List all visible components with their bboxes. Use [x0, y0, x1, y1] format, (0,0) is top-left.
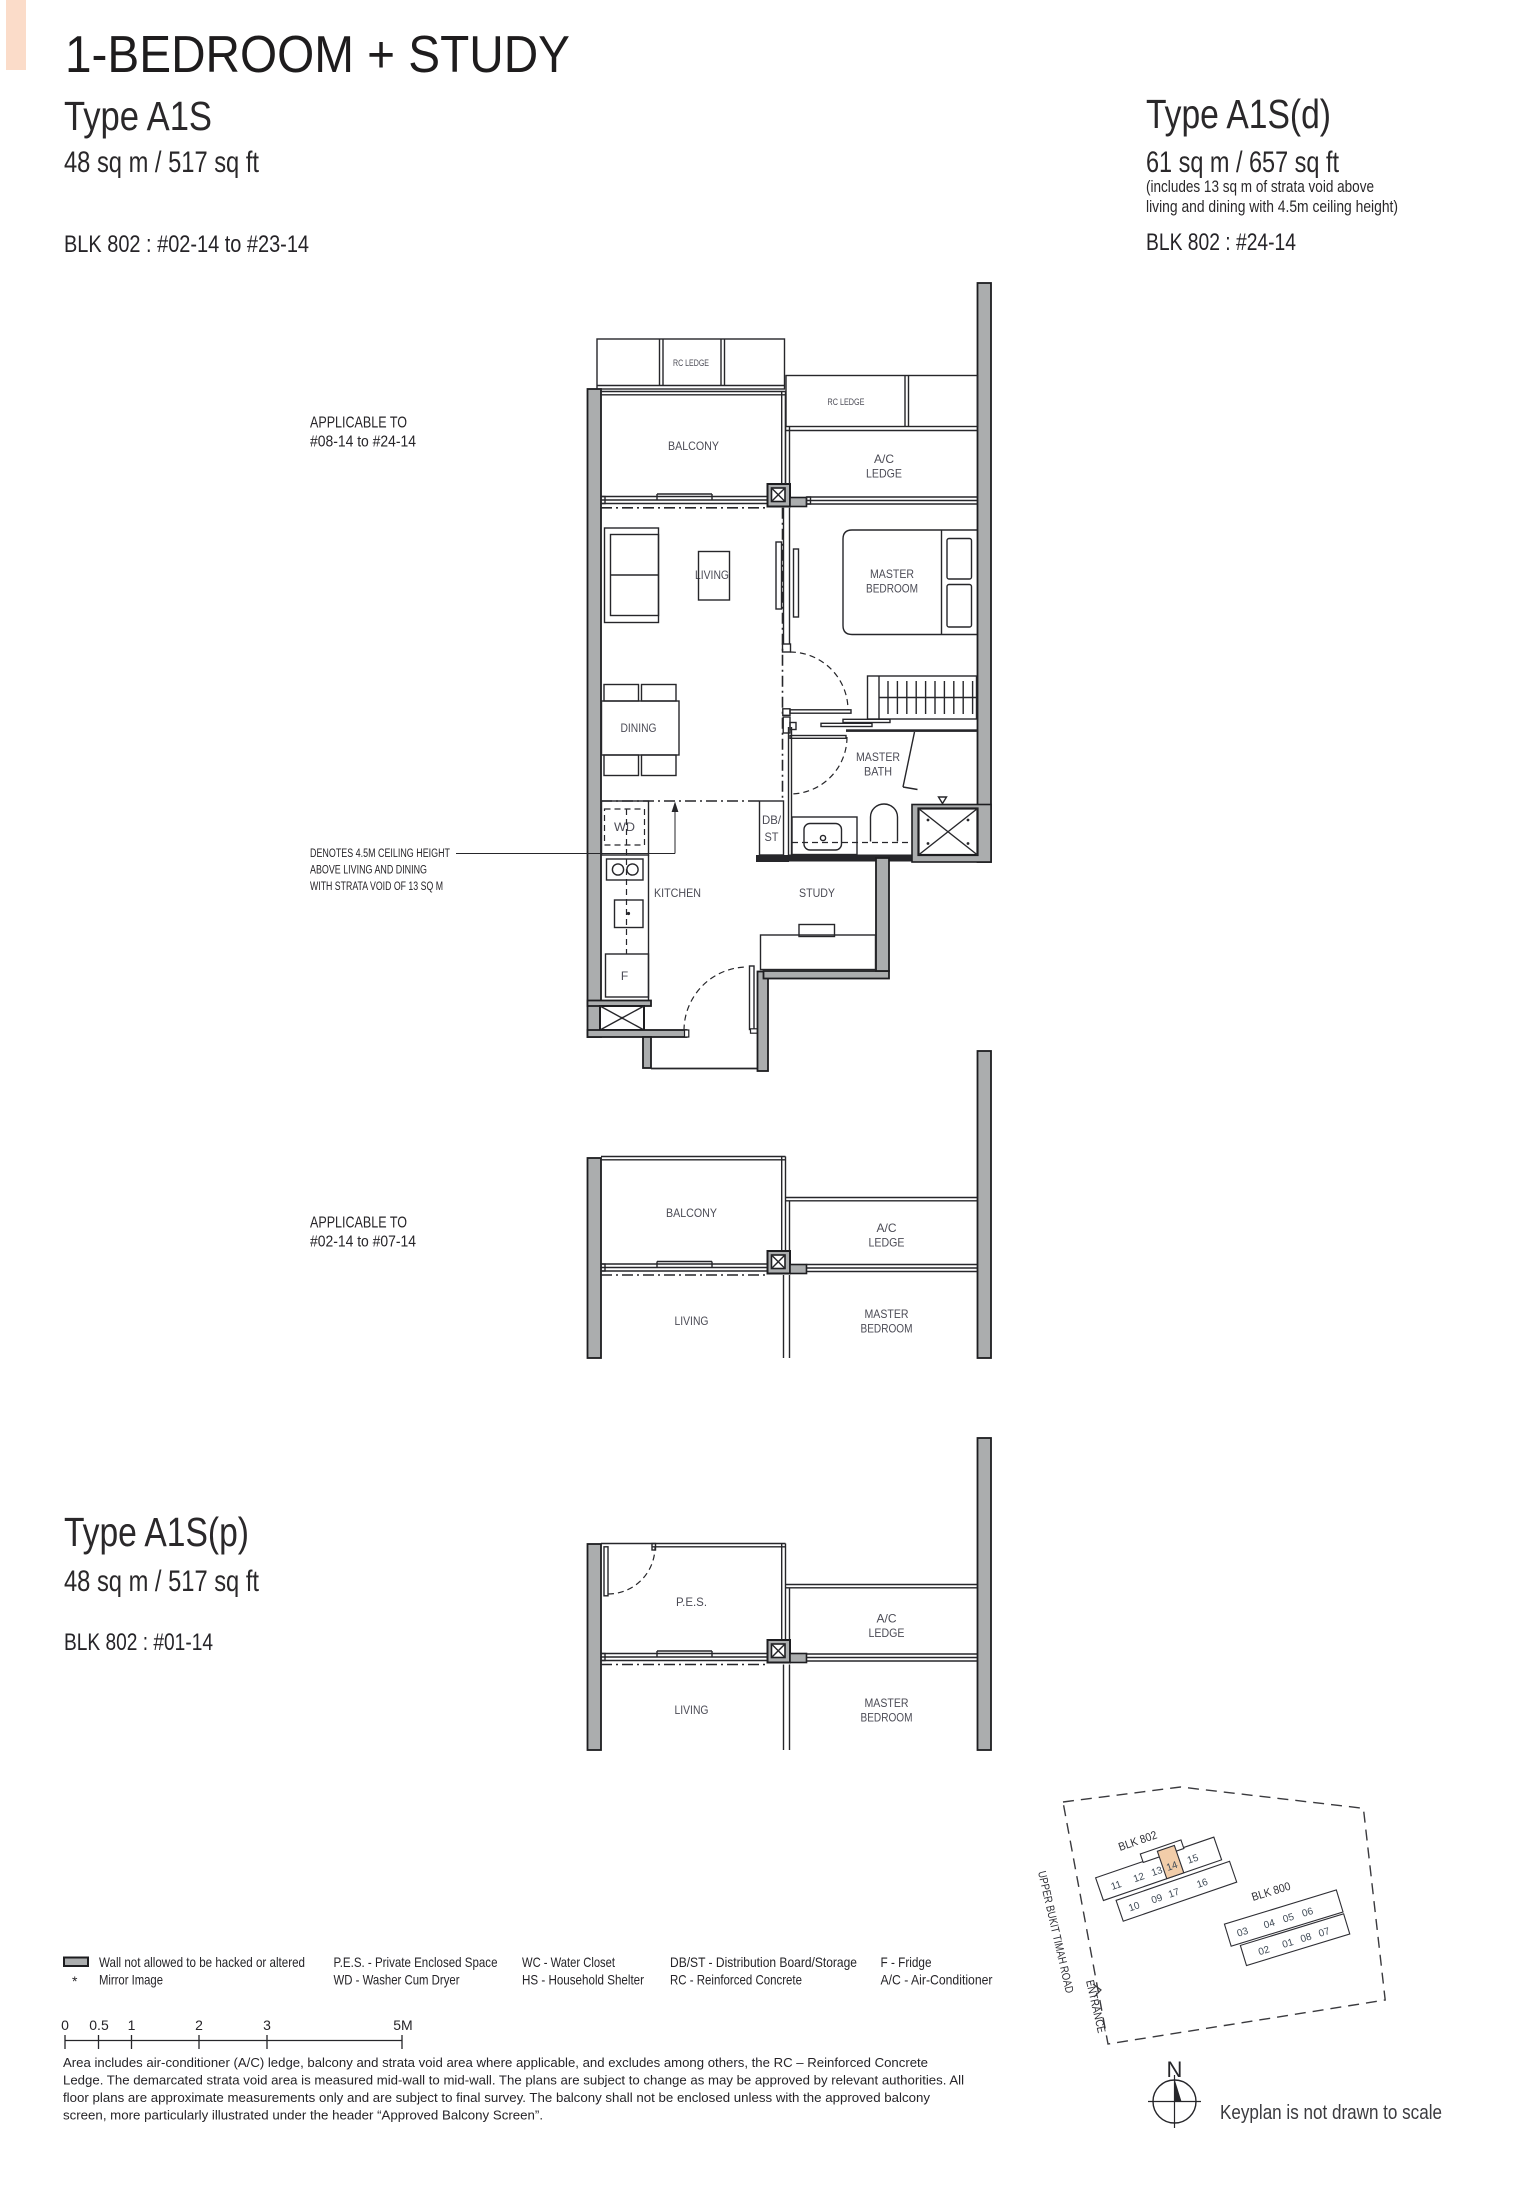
svg-text:WC - Water Closet: WC - Water Closet [522, 1954, 615, 1970]
svg-text:RC LEDGE: RC LEDGE [828, 397, 865, 408]
svg-text:#08-14 to #24-14: #08-14 to #24-14 [310, 434, 416, 451]
svg-text:A/C: A/C [874, 452, 894, 466]
svg-text:LIVING: LIVING [675, 1314, 709, 1328]
svg-text:BALCONY: BALCONY [668, 439, 719, 453]
svg-text:Type A1S: Type A1S [64, 93, 212, 139]
svg-text:screen, more particularly illu: screen, more particularly illustrated un… [63, 2108, 543, 2123]
svg-text:Ledge. The demarcated strata v: Ledge. The demarcated strata void area i… [63, 2073, 964, 2088]
svg-text:A/C: A/C [877, 1612, 897, 1626]
svg-text:RC - Reinforced Concrete: RC - Reinforced Concrete [670, 1972, 802, 1988]
svg-text:P.E.S.: P.E.S. [676, 1595, 707, 1609]
svg-text:LEDGE: LEDGE [866, 467, 902, 481]
svg-text:DINING: DINING [621, 721, 657, 735]
svg-text:Area includes air-conditioner: Area includes air-conditioner (A/C) ledg… [63, 2055, 928, 2070]
svg-text:BATH: BATH [864, 765, 892, 779]
svg-text:F: F [621, 969, 628, 983]
svg-text:Type A1S(d): Type A1S(d) [1146, 91, 1331, 137]
svg-text:0.5: 0.5 [89, 2017, 109, 2033]
svg-text:BEDROOM: BEDROOM [861, 1711, 913, 1725]
svg-text:STUDY: STUDY [799, 886, 835, 900]
svg-text:APPLICABLE TO: APPLICABLE TO [310, 1215, 407, 1232]
svg-text:APPLICABLE TO: APPLICABLE TO [310, 415, 407, 432]
svg-text:MASTER: MASTER [865, 1307, 909, 1321]
svg-text:*: * [72, 1973, 78, 1989]
svg-text:LIVING: LIVING [675, 1703, 709, 1717]
svg-text:5M: 5M [393, 2017, 412, 2033]
svg-text:61 sq m / 657 sq ft: 61 sq m / 657 sq ft [1146, 146, 1340, 179]
svg-text:F - Fridge: F - Fridge [881, 1954, 932, 1970]
svg-text:DB/: DB/ [762, 813, 782, 827]
svg-text:Mirror Image: Mirror Image [99, 1972, 163, 1988]
svg-text:DENOTES 4.5M CEILING HEIGHT: DENOTES 4.5M CEILING HEIGHT [310, 848, 450, 860]
svg-text:BLK 802 : #02-14 to #23-14: BLK 802 : #02-14 to #23-14 [64, 231, 309, 258]
svg-text:living and dining with 4.5m ce: living and dining with 4.5m ceiling heig… [1146, 197, 1398, 216]
svg-text:3: 3 [263, 2017, 271, 2033]
svg-text:(includes 13 sq m of strata vo: (includes 13 sq m of strata void above [1146, 177, 1374, 196]
svg-text:ABOVE LIVING AND DINING: ABOVE LIVING AND DINING [310, 865, 427, 877]
svg-text:P.E.S. - Private Enclosed Spac: P.E.S. - Private Enclosed Space [334, 1954, 498, 1970]
svg-text:MASTER: MASTER [865, 1696, 909, 1710]
svg-text:WD: WD [614, 820, 635, 834]
svg-text:MASTER: MASTER [870, 567, 914, 581]
svg-text:N: N [1167, 2057, 1183, 2082]
svg-text:2: 2 [195, 2017, 203, 2033]
svg-text:HS - Household Shelter: HS - Household Shelter [522, 1972, 644, 1988]
svg-text:BEDROOM: BEDROOM [866, 582, 918, 596]
svg-text:MASTER: MASTER [856, 750, 900, 764]
svg-text:WD - Washer Cum Dryer: WD - Washer Cum Dryer [334, 1972, 460, 1988]
svg-text:ST: ST [765, 830, 780, 844]
svg-text:BLK 802 : #24-14: BLK 802 : #24-14 [1146, 229, 1296, 256]
svg-text:LIVING: LIVING [695, 568, 729, 582]
svg-text:Keyplan is not drawn to scale: Keyplan is not drawn to scale [1220, 2101, 1442, 2124]
svg-text:A/C: A/C [877, 1221, 897, 1235]
svg-text:Wall not allowed to be hacked: Wall not allowed to be hacked or altered [99, 1954, 305, 1970]
svg-text:DB/ST - Distribution Board/Sto: DB/ST - Distribution Board/Storage [670, 1954, 857, 1970]
svg-text:LEDGE: LEDGE [869, 1626, 905, 1640]
svg-text:48 sq m / 517 sq ft: 48 sq m / 517 sq ft [64, 146, 260, 179]
svg-text:BLK 802 : #01-14: BLK 802 : #01-14 [64, 1629, 213, 1656]
svg-text:0: 0 [61, 2017, 69, 2033]
svg-text:RC LEDGE: RC LEDGE [673, 358, 709, 369]
svg-text:BALCONY: BALCONY [666, 1206, 717, 1220]
svg-text:WITH STRATA VOID OF 13 SQ M: WITH STRATA VOID OF 13 SQ M [310, 881, 443, 893]
svg-text:floor plans are approximate me: floor plans are approximate measurements… [63, 2090, 931, 2105]
svg-text:48 sq m / 517 sq ft: 48 sq m / 517 sq ft [64, 1565, 260, 1598]
svg-text:#02-14 to #07-14: #02-14 to #07-14 [310, 1234, 416, 1251]
svg-text:BEDROOM: BEDROOM [861, 1322, 913, 1336]
svg-text:1-BEDROOM + STUDY: 1-BEDROOM + STUDY [65, 26, 570, 84]
svg-text:Type A1S(p): Type A1S(p) [64, 1509, 249, 1555]
svg-text:1: 1 [128, 2017, 136, 2033]
svg-text:A/C - Air-Conditioner: A/C - Air-Conditioner [881, 1972, 993, 1988]
svg-text:LEDGE: LEDGE [869, 1236, 905, 1250]
svg-text:KITCHEN: KITCHEN [654, 886, 701, 900]
